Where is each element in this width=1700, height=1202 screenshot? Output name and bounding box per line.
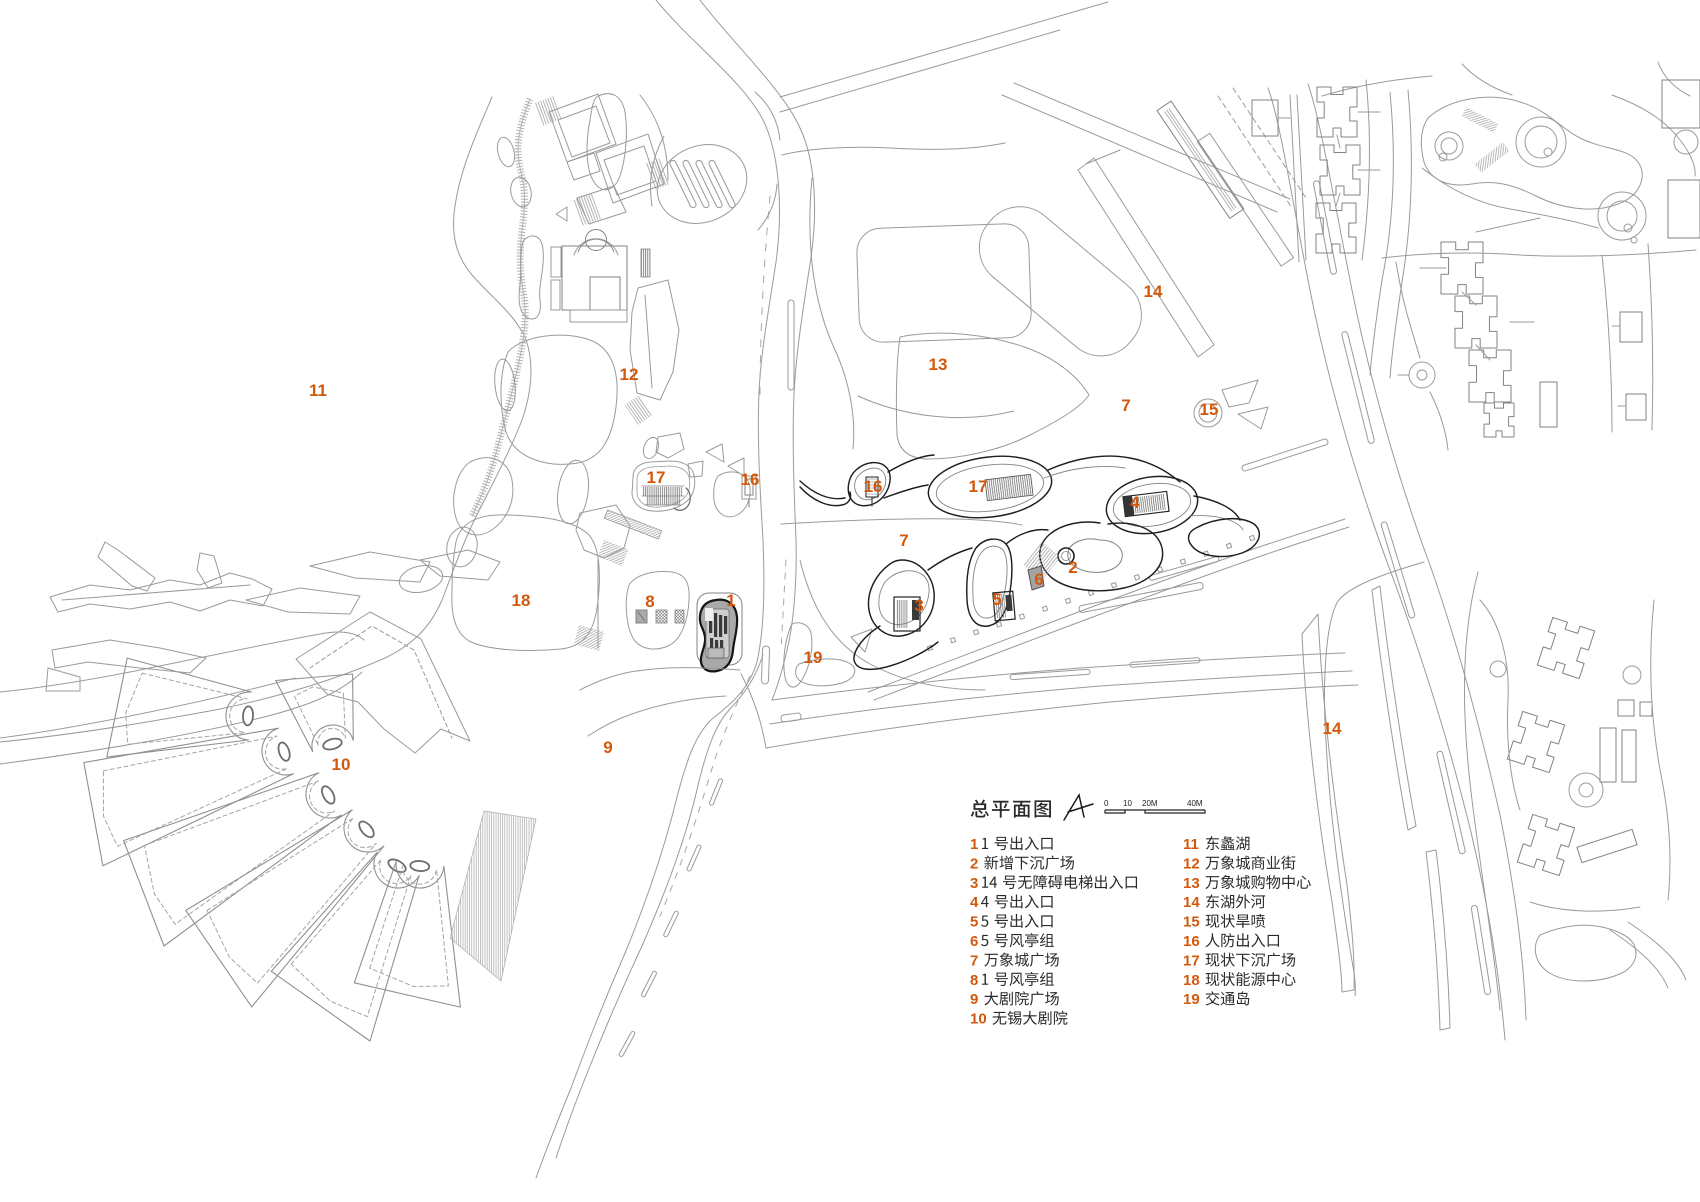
svg-text:3: 3 [970, 875, 978, 892]
svg-text:7: 7 [899, 531, 908, 550]
svg-text:0: 0 [1104, 799, 1109, 808]
svg-text:13: 13 [1183, 875, 1200, 892]
svg-text:18: 18 [1183, 972, 1200, 989]
svg-text:3: 3 [914, 596, 923, 615]
svg-text:8: 8 [645, 592, 654, 611]
svg-text:10: 10 [970, 1011, 987, 1028]
svg-text:7: 7 [1121, 396, 1130, 415]
svg-text:7: 7 [970, 952, 978, 969]
svg-text:5: 5 [970, 914, 978, 931]
svg-text:9: 9 [970, 991, 978, 1008]
svg-text:12: 12 [1183, 855, 1200, 872]
svg-text:11: 11 [1183, 836, 1199, 853]
svg-text:4: 4 [970, 894, 979, 911]
svg-text:1: 1 [970, 836, 978, 853]
svg-text:10: 10 [1123, 799, 1132, 808]
svg-text:15: 15 [1200, 400, 1219, 419]
svg-text:6: 6 [970, 933, 978, 950]
svg-text:11: 11 [309, 381, 327, 400]
svg-text:16: 16 [1183, 933, 1200, 950]
svg-text:16: 16 [741, 470, 760, 489]
svg-text:2: 2 [970, 855, 978, 872]
svg-text:14: 14 [1144, 282, 1163, 301]
svg-text:8: 8 [970, 972, 978, 989]
svg-text:14: 14 [1323, 719, 1342, 738]
svg-text:4: 4 [1130, 493, 1140, 512]
svg-text:16: 16 [864, 477, 883, 496]
svg-text:18: 18 [512, 591, 531, 610]
svg-text:19: 19 [804, 648, 823, 667]
svg-text:2: 2 [1068, 558, 1077, 577]
svg-text:12: 12 [620, 365, 639, 384]
svg-text:15: 15 [1183, 914, 1200, 931]
svg-text:1: 1 [726, 591, 735, 610]
svg-text:20M: 20M [1142, 799, 1158, 808]
svg-text:14: 14 [1183, 894, 1200, 911]
svg-text:17: 17 [647, 468, 666, 487]
svg-text:19: 19 [1183, 991, 1200, 1008]
svg-text:5: 5 [992, 590, 1001, 609]
svg-text:9: 9 [603, 738, 612, 757]
svg-text:10: 10 [332, 755, 351, 774]
svg-text:17: 17 [1183, 952, 1200, 969]
svg-text:6: 6 [1034, 570, 1043, 589]
svg-text:40M: 40M [1187, 799, 1203, 808]
svg-text:13: 13 [929, 355, 948, 374]
svg-text:17: 17 [969, 477, 988, 496]
